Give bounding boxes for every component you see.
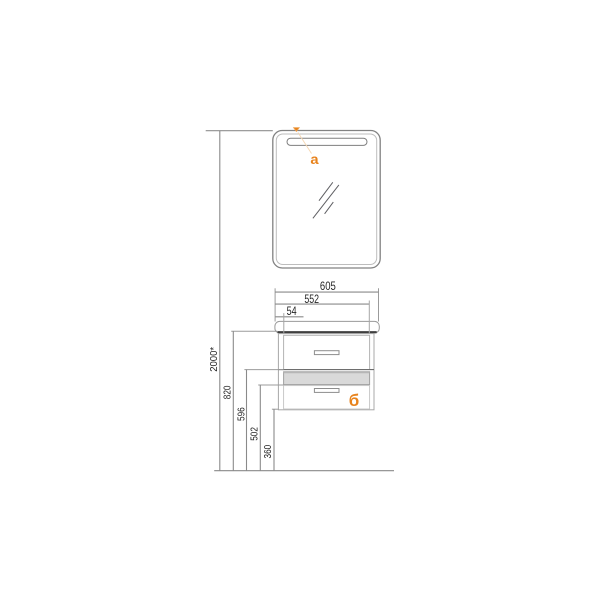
svg-text:а: а — [310, 151, 318, 167]
svg-text:360: 360 — [263, 444, 274, 458]
svg-text:552: 552 — [304, 293, 319, 306]
svg-text:605: 605 — [320, 280, 336, 293]
svg-text:502: 502 — [249, 427, 260, 441]
svg-text:54: 54 — [287, 305, 297, 318]
svg-text:2000*: 2000* — [209, 347, 220, 372]
svg-text:596: 596 — [236, 407, 247, 421]
svg-text:820: 820 — [223, 385, 234, 399]
svg-text:б: б — [349, 391, 360, 410]
